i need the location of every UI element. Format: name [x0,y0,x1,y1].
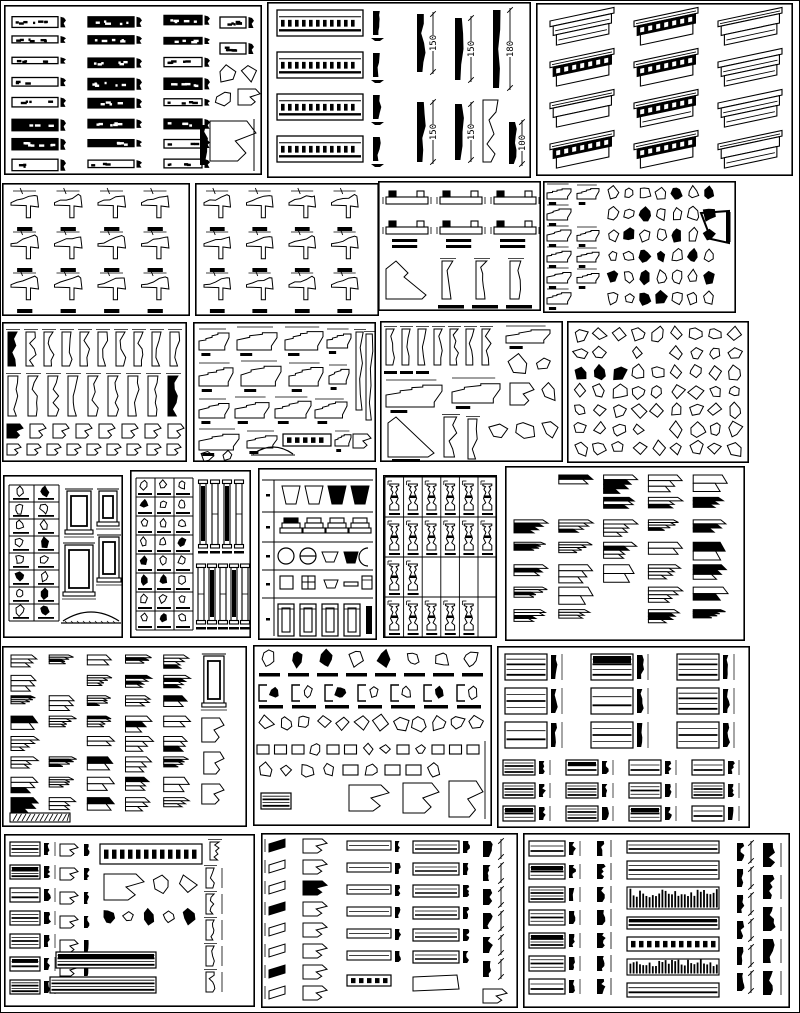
molding-bar [88,58,142,68]
panel-beam-section-details [379,182,540,310]
panel-baluster-column-table [131,471,250,637]
framed-panel [96,489,120,529]
panel-molding-3d-columns [262,834,517,1007]
panel-molding [692,806,739,821]
panel-frieze-band-details [524,834,789,1007]
baluster-column [196,564,206,630]
dimension-label: 150 [467,41,477,57]
panel-molding [56,952,156,968]
panel-molding [529,841,580,856]
panel-molding [591,688,648,714]
panel-molding-profile-strips [3,323,186,461]
baluster-column [240,564,250,630]
molding-bar [88,140,142,147]
molding-bar [88,160,142,168]
molding-bar [12,57,66,63]
framed-panel [62,543,96,599]
panel-molding [10,980,55,994]
panel-molding [529,887,580,902]
panel-molding [505,688,562,714]
dimension-label: 180 [506,41,516,57]
crown-profile [87,798,114,811]
cad-sheet: 150150180150150100 [0,0,800,1013]
molding-bar [12,17,66,28]
cornice-elevation [277,52,363,78]
panel-eave-section-details-b [196,184,378,315]
framed-panel [64,489,94,537]
dimension-label: 100 [518,135,528,151]
panel-molding [591,654,648,680]
panel-crown-molding-isometrics [537,4,792,175]
panel-molding [505,654,562,680]
cornice-elevation [277,10,363,36]
panel-molding [10,888,55,902]
panel-trim-fitting-mix [254,646,491,825]
panel-molding [677,722,734,748]
dentil-band [347,975,391,986]
panel-molding [566,760,613,775]
panel-molding [529,864,580,879]
panel-molding [591,722,648,748]
panel-molding [627,983,719,997]
crown-profile [87,655,111,665]
panel-molding [505,722,562,748]
panel-cornice-elevation-strips [5,6,261,174]
molding-bar [88,98,142,108]
molding-bar [12,78,66,87]
panel-casing-panel-moldings [498,647,749,827]
framed-panel [96,535,122,585]
panel-molding [10,911,55,925]
panel-cornice-profiles-dimensioned: 150150180150150100 [268,3,530,177]
panel-capital-base-band-chart [259,469,376,639]
molding-bar [12,119,66,130]
molding-bar [88,119,142,128]
panel-pedestal-panel-table [4,476,122,637]
panel-molding [10,865,55,879]
panel-molding [627,841,719,853]
dimension-label: 150 [429,35,439,51]
panel-molding [677,654,734,680]
panel-molding [529,933,580,948]
panel-molding [677,688,734,714]
dimension-label: 150 [467,124,477,140]
panel-molding [503,760,550,775]
panel-cornice-section-profiles [194,323,375,462]
panel-bracket-outline-library [568,322,748,462]
panel-molding [566,783,613,798]
molding-bar [220,17,254,28]
panel-molding [10,957,55,971]
panel-eave-section-details-a [3,184,189,315]
panel-molding [692,783,739,798]
dentil-band [283,434,331,446]
molding-bar [12,139,66,150]
sheet-canvas: 150150180150150100 [0,0,800,1013]
panel-cornice-assembly-mix [5,835,254,1006]
panel-molding [627,861,719,879]
molding-bar [12,97,66,106]
molding-bar [12,159,66,171]
panel-molding [261,793,291,809]
panel-crown-profile-columns-a [506,467,744,640]
dentil-band [100,844,202,864]
molding-bar [88,36,142,44]
molding-bar [220,43,254,54]
panel-crown-profile-columns-b [3,647,246,826]
cornice-elevation [277,136,363,162]
panel-molding [629,783,676,798]
frieze-band [627,887,719,909]
panel-molding [529,956,580,971]
framed-panel [201,654,227,710]
cornice-elevation [277,94,363,120]
baluster-column [222,480,232,554]
panel-molding [629,806,676,821]
baluster-column [218,564,228,630]
panel-molding [529,979,580,994]
baluster-column [207,564,217,630]
panel-molding [503,806,550,821]
dentil-band [627,937,719,951]
baluster-column [210,480,220,554]
molding-bar [88,78,142,89]
panel-molding [627,917,719,929]
baluster-column [198,480,208,554]
panel-molding [566,806,613,821]
baluster-column [229,564,239,630]
panel-molding [529,910,580,925]
baluster-column [234,480,244,554]
frieze-band [627,959,719,975]
panel-mixed-section-profiles [381,322,562,462]
panel-baluster-grid [384,476,497,637]
panel-molding [50,977,156,993]
dimension-label: 150 [429,124,439,140]
molding-bar [12,36,66,43]
molding-bar [88,17,142,27]
panel-small-profile-library [544,182,735,312]
panel-molding [692,760,739,775]
